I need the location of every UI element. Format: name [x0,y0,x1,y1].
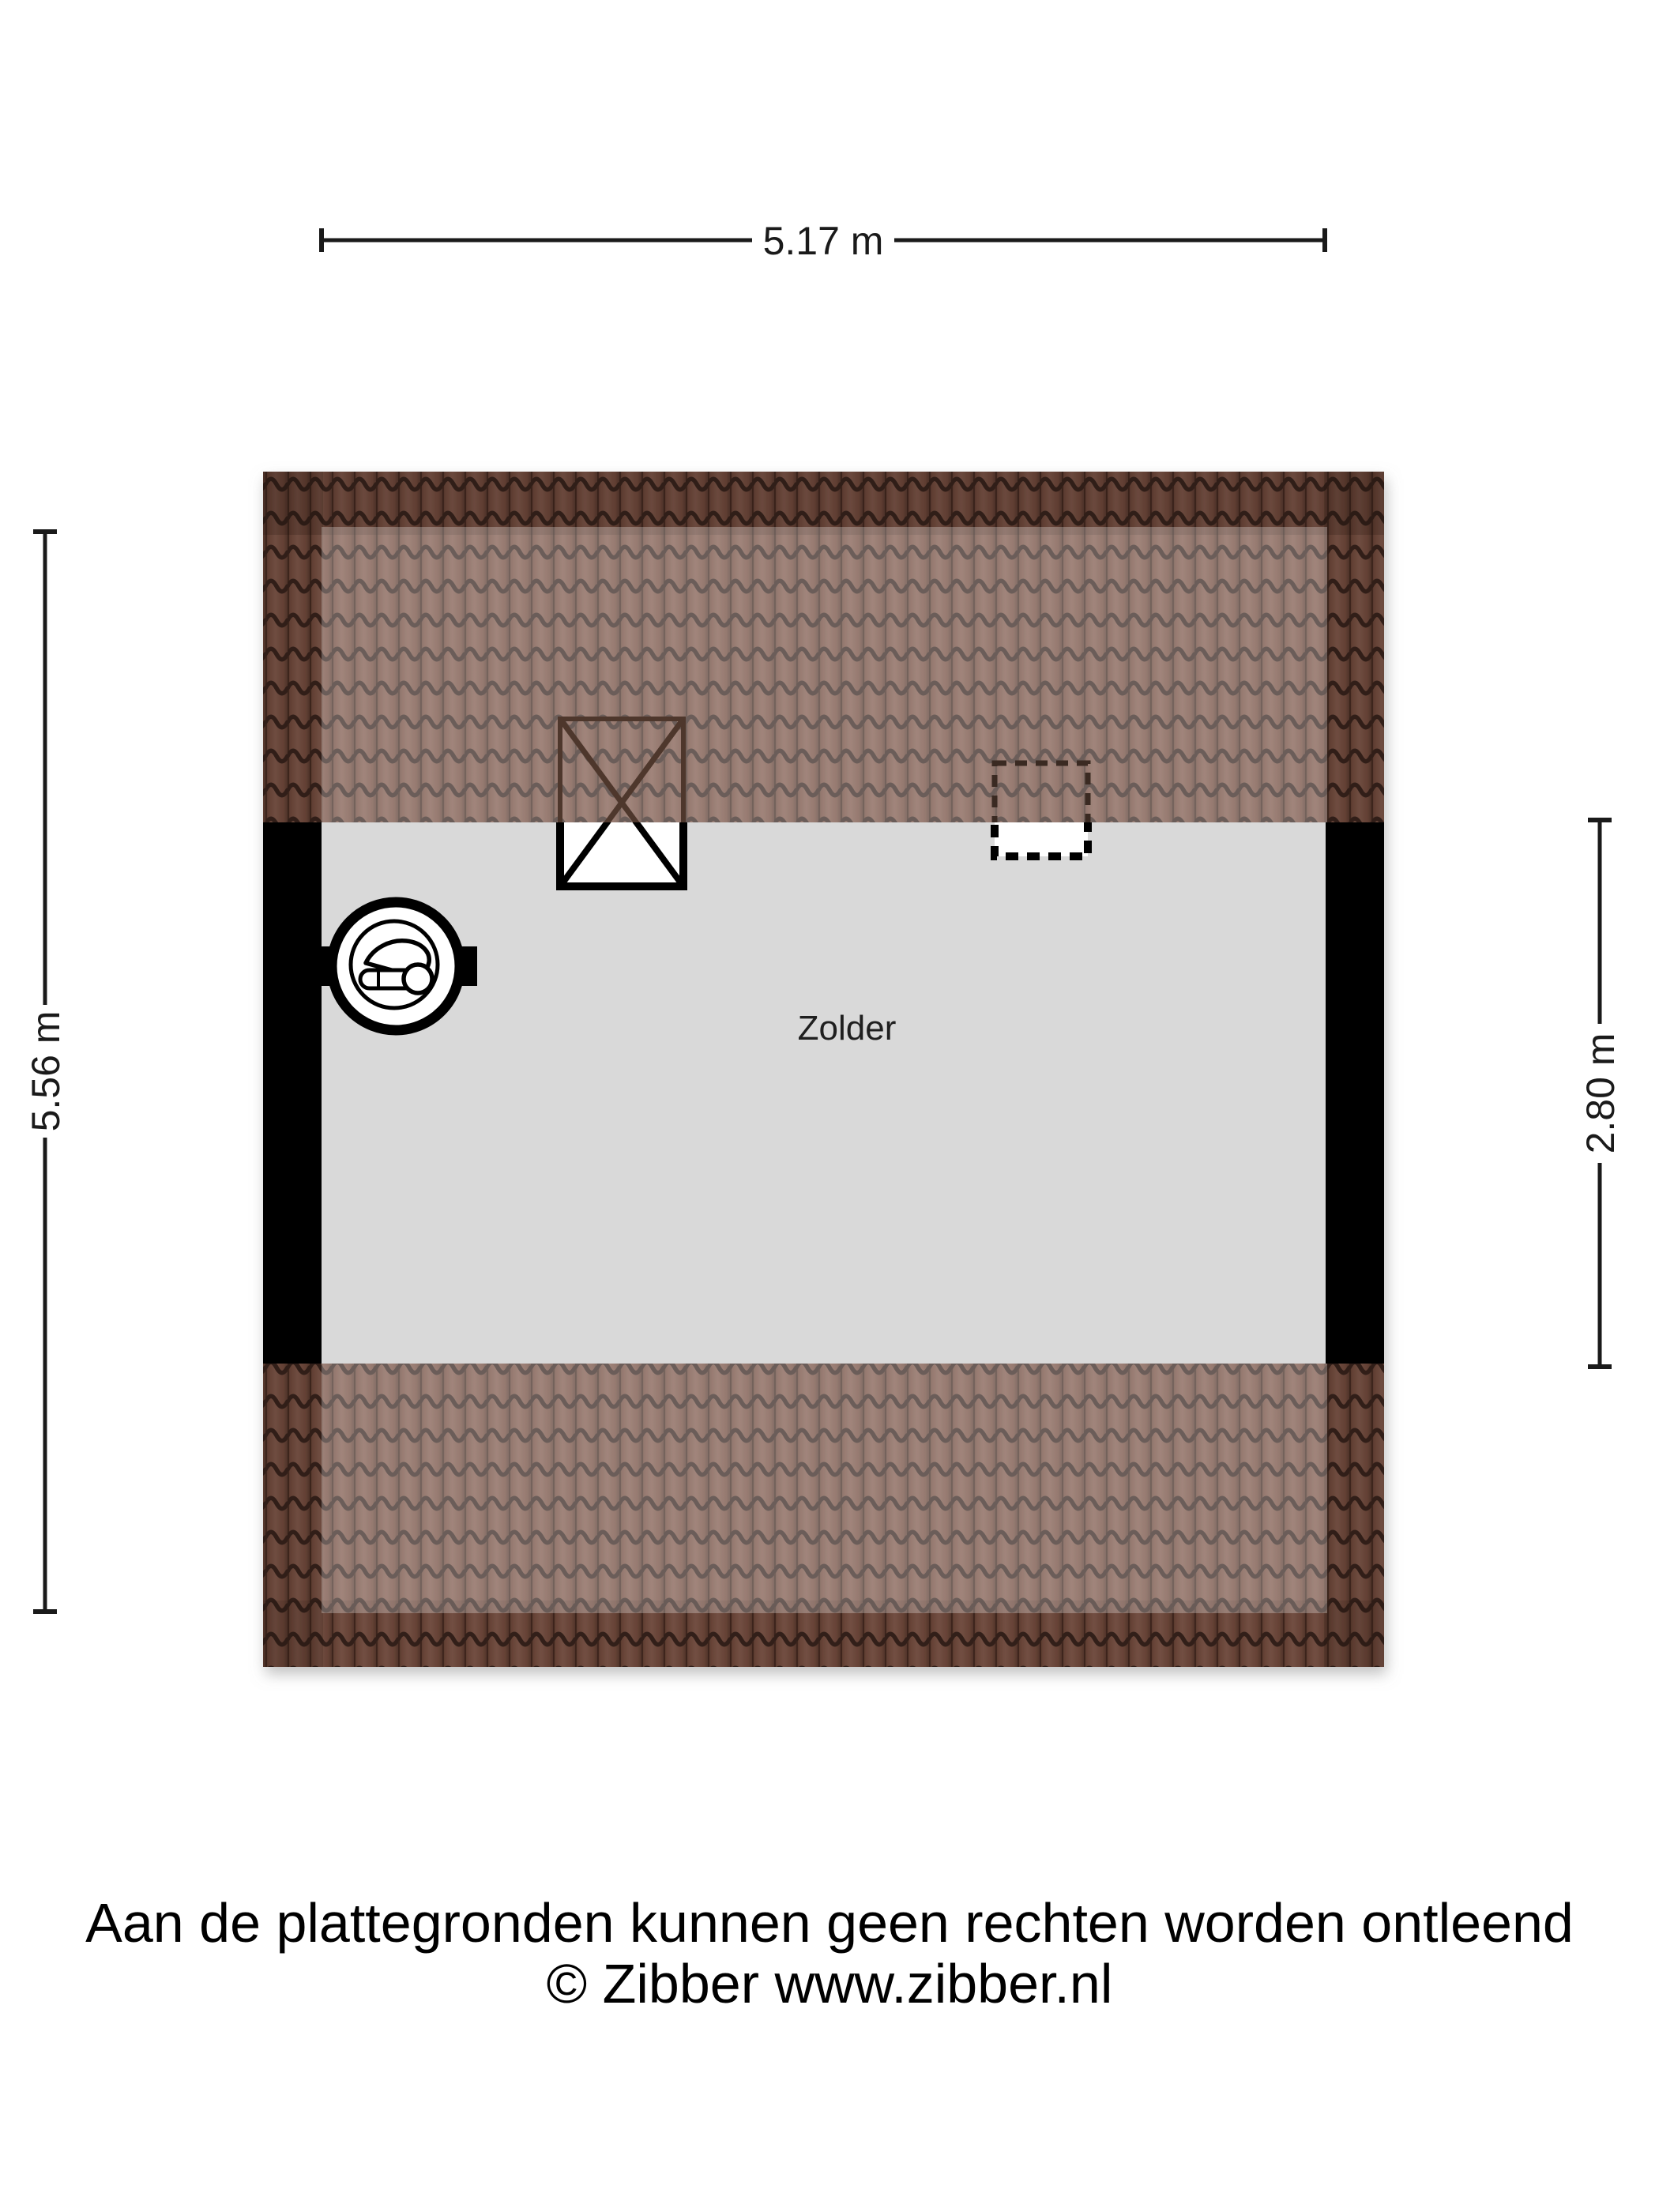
footer-copyright: © Zibber www.zibber.nl [0,1954,1659,2014]
room-label: Zolder [798,1009,897,1048]
dimension-top: 5.17 m [322,219,1325,263]
dimension-right: 2.80 m [1578,820,1623,1367]
wall-left [263,822,322,1364]
floor-plan-canvas: Zolder 5.17 m 5.56 m 2.80 m [0,0,1659,2212]
footer: Aan de plattegronden kunnen geen rechten… [0,1893,1659,2014]
dimension-label-top: 5.17 m [763,219,884,263]
wall-right [1326,822,1384,1364]
footer-disclaimer: Aan de plattegronden kunnen geen rechten… [0,1893,1659,1954]
attic-floor [322,822,1327,1364]
dimension-label-right: 2.80 m [1578,1033,1623,1154]
dimension-left: 5.56 m [24,532,68,1612]
attic-floor-plan: Zolder [263,472,1384,1667]
boiler-knob [404,965,432,993]
dimension-label-left: 5.56 m [24,1011,68,1132]
roof-eave-top [263,472,1384,535]
